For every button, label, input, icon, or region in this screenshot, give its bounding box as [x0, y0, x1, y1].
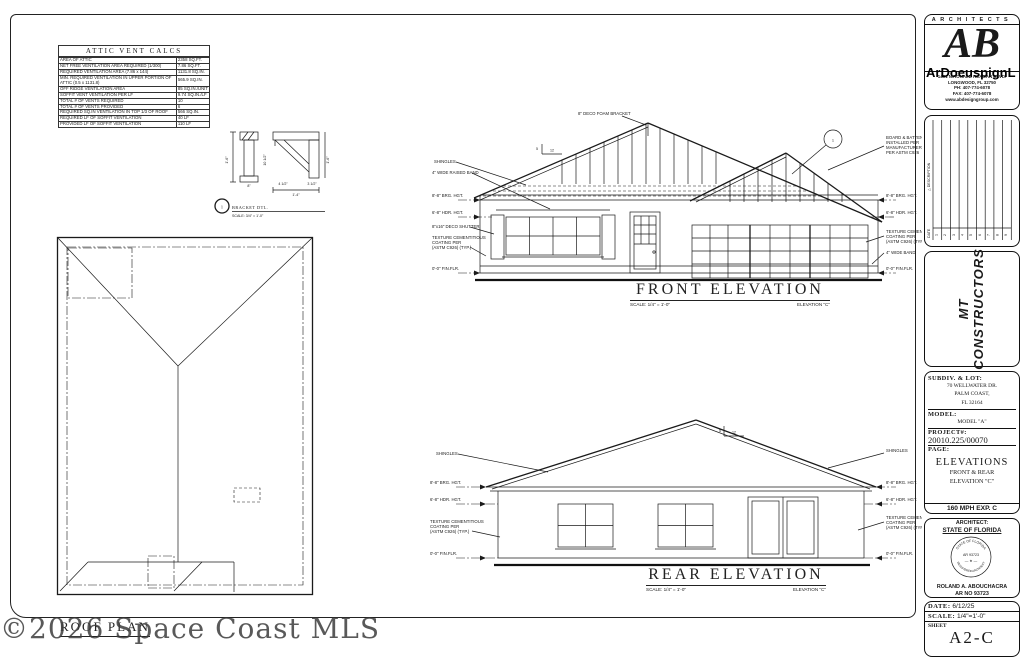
dim-label: 1'-6"	[225, 156, 229, 164]
svg-text:8'-8" BRG. HGT.: 8'-8" BRG. HGT.	[886, 480, 917, 485]
svg-text:7: 7	[987, 234, 991, 236]
model-section: MODEL: MODEL "A"	[928, 410, 1016, 429]
svg-text:0'-0" FIN.FLR.: 0'-0" FIN.FLR.	[432, 266, 459, 271]
detail-scale: SCALE: 3/4" = 1'-0"	[232, 214, 264, 218]
model-value: MODEL "A"	[928, 418, 1016, 426]
detail-number: 1	[221, 205, 223, 210]
svg-text:5: 5	[536, 147, 538, 151]
rear-elevation-scale: SCALE: 1/4" = 1'-0"	[646, 587, 686, 592]
logo-overlay-text: ArDoeuspignL	[926, 65, 1016, 80]
svg-text:2: 2	[943, 234, 947, 236]
page-title: ELEVATIONS	[928, 457, 1016, 468]
svg-text:0'-0" FIN.FLR.: 0'-0" FIN.FLR.	[886, 551, 913, 556]
svg-text:9: 9	[1004, 234, 1008, 236]
front-elevation-title: FRONT ELEVATION SCALE: 1/4" = 1'-0" ELEV…	[630, 281, 830, 307]
front-elevation-tag: ELEVATION "C"	[797, 302, 830, 307]
dim-label: 1'-4"	[292, 193, 300, 197]
roof-plan-drawing	[56, 236, 314, 596]
dim-label: 4 1/2"	[278, 182, 288, 186]
svg-text:0'-0" FIN.FLR.: 0'-0" FIN.FLR.	[886, 266, 913, 271]
front-entry-door	[630, 212, 660, 273]
project-number-value: 20010.225/00070	[928, 435, 1016, 446]
front-garage-door	[692, 225, 868, 278]
svg-text:1: 1	[934, 234, 938, 236]
rear-window-a	[555, 504, 616, 549]
svg-text:SHINGLES: SHINGLES	[436, 451, 458, 456]
svg-text:1: 1	[832, 138, 834, 143]
front-elevation-scale: SCALE: 1/4" = 1'-0"	[630, 302, 670, 307]
svg-text:6: 6	[978, 234, 982, 236]
architect-seal-panel: ARCHITECT: STATE OF FLORIDA STATE OF FLO…	[924, 518, 1020, 598]
revision-date-label: DATE	[927, 228, 931, 238]
architect-logo-panel: ARCHITECTS AB ArDoeuspignL 1461 N.RONALD…	[924, 14, 1020, 110]
issue-panel: DATE: 6/12/25 SCALE: 1/4"=1'-0" SHEET A2…	[924, 601, 1020, 657]
company-panel: MT CONSTRUCTORS	[924, 251, 1020, 367]
dim-label: 3 1/2"	[307, 182, 317, 186]
scale-value: 1/4"=1'-0"	[957, 613, 986, 620]
roof-plan-dormer-outline	[68, 248, 132, 298]
dim-label: 8"	[247, 184, 251, 188]
date-label: DATE:	[928, 603, 951, 610]
front-window	[491, 210, 615, 259]
roof-plan-entry-outline	[148, 556, 174, 588]
front-roof	[474, 116, 882, 222]
svg-text:6'-8" HDR. HGT.: 6'-8" HDR. HGT.	[432, 210, 463, 215]
project-number-section: PROJECT#: 20010.225/00070	[928, 429, 1016, 446]
seal-number: AR 93723	[963, 553, 979, 557]
rear-roof	[486, 420, 876, 491]
rear-pitch-marker: 12 5	[719, 426, 744, 436]
svg-text:0'-0" FIN.FLR.: 0'-0" FIN.FLR.	[430, 551, 457, 556]
svg-text:PER ASTM C926: PER ASTM C926	[886, 150, 920, 155]
rear-elevation-drawing: 12 5	[428, 392, 922, 570]
revision-table-panel: △ DESCRIPTION DATE 1 2 3 4 5 6 7 8 9	[924, 115, 1020, 247]
date-value: 6/12/25	[952, 603, 974, 610]
svg-text:5: 5	[719, 429, 721, 433]
svg-text:12: 12	[550, 149, 554, 153]
svg-text:SHINGLES: SHINGLES	[886, 448, 908, 453]
svg-text:(ASTM C926) (TYP.): (ASTM C926) (TYP.)	[430, 529, 470, 534]
seal-header: ARCHITECT: STATE OF FLORIDA	[925, 519, 1019, 535]
table-row: PROVIDED LF OF SOFFIT VENTILATION110 LF	[59, 122, 210, 128]
architect-name: ROLAND A. ABOUCHACRA AR NO 93723	[925, 584, 1019, 598]
front-walls	[480, 195, 878, 273]
svg-text:6'-8" HDR. HGT.: 6'-8" HDR. HGT.	[886, 210, 917, 215]
rear-sliding-door	[748, 497, 818, 558]
company-name: MT CONSTRUCTORS	[957, 248, 987, 370]
page-section: PAGE: ELEVATIONS FRONT & REAR ELEVATION …	[928, 446, 1016, 487]
svg-text:6'-8" HDR. HGT.: 6'-8" HDR. HGT.	[430, 497, 461, 502]
board-batten-main-gable	[478, 116, 882, 196]
shutter-right	[602, 215, 615, 259]
detail-title: BRACKET DTL.	[232, 205, 268, 210]
bracket-front-view	[230, 132, 258, 182]
table-row: MIN. REQUIRED VENTILATION IN UPPER PORTI…	[59, 75, 210, 86]
scale-label: SCALE:	[928, 613, 955, 620]
svg-text:12: 12	[732, 431, 736, 435]
page-label: PAGE:	[928, 446, 1016, 453]
subdiv-section: SUBDIV. & LOT: 70 WELLWATER DR. PALM COA…	[928, 374, 1016, 410]
dim-label: 1'-6"	[326, 156, 330, 164]
project-info-panel: SUBDIV. & LOT: 70 WELLWATER DR. PALM COA…	[924, 371, 1020, 514]
architect-seal: STATE OF FLORIDA REGISTERED ARCHITECT AR…	[925, 535, 1017, 579]
front-labels-right: BOARD & BATTEN SIDING INSTALLED PER MANU…	[828, 135, 922, 271]
seal-stars: — ★ —	[965, 559, 978, 563]
svg-text:6'-8" HDR. HGT.: 6'-8" HDR. HGT.	[886, 497, 917, 502]
revision-grid: △ DESCRIPTION DATE 1 2 3 4 5 6 7 8 9	[925, 116, 1017, 244]
svg-text:(ASTM C926) (TYP.): (ASTM C926) (TYP.)	[432, 245, 472, 250]
svg-text:3: 3	[952, 234, 956, 236]
roof-plan-vent-outline	[234, 488, 260, 502]
bracket-detail-drawing: 1'-6" 8" 10 1/2" 4 1/2" 3 1/2" 1'-4" 1'-…	[213, 120, 331, 220]
model-label: MODEL:	[928, 411, 1016, 418]
svg-text:(ASTM C926) (TYP.): (ASTM C926) (TYP.)	[886, 525, 922, 530]
rear-elevation-title: REAR ELEVATION SCALE: 1/4" = 1'-0" ELEVA…	[646, 566, 826, 592]
subdiv-label: SUBDIV. & LOT:	[928, 375, 1016, 382]
rear-labels-left: SHINGLES 8'-8" BRG. HGT. 6'-8" HDR. HGT.…	[430, 451, 548, 556]
front-elevation-drawing: 12 5 1 8" DECO FOAM BRACKET SHINGLES 4" …	[430, 106, 922, 284]
rear-elevation-tag: ELEVATION "C"	[793, 587, 826, 592]
issue-date-row: DATE: 6/12/25	[925, 602, 1019, 612]
svg-text:8'-8" BRG. HGT.: 8'-8" BRG. HGT.	[430, 480, 461, 485]
svg-text:8'-8" BRG. HGT.: 8'-8" BRG. HGT.	[886, 193, 917, 198]
roof-plan-lines	[58, 238, 313, 595]
attic-table-title: ATTIC VENT CALCS	[58, 45, 210, 57]
issue-scale-row: SCALE: 1/4"=1'-0"	[925, 612, 1019, 622]
svg-text:4" WIDE BAND: 4" WIDE BAND	[886, 250, 915, 255]
wind-rating: 160 MPH EXP. C	[925, 503, 1019, 512]
svg-text:4: 4	[961, 234, 965, 236]
sheet-number: A2-C	[925, 629, 1019, 646]
rear-window-b	[655, 504, 716, 549]
svg-text:5: 5	[969, 234, 973, 236]
rear-labels-right: SHINGLES 8'-8" BRG. HGT. 6'-8" HDR. HGT.…	[828, 448, 922, 556]
front-pitch-marker: 12 5	[536, 144, 562, 154]
mls-watermark: ©2026 Space Coast MLS	[0, 612, 380, 645]
attic-vent-calcs-table: ATTIC VENT CALCS AREA OF ATTIC2358 SQ.FT…	[58, 45, 210, 128]
plan-sheet: ATTIC VENT CALCS AREA OF ATTIC2358 SQ.FT…	[0, 0, 1024, 663]
dim-label: 10 1/2"	[263, 154, 267, 166]
revision-description-label: △ DESCRIPTION	[927, 162, 931, 191]
svg-text:8"x16" DECO SHUTTER: 8"x16" DECO SHUTTER	[432, 224, 479, 229]
svg-text:(ASTM C926) (TYP.): (ASTM C926) (TYP.)	[886, 239, 922, 244]
svg-text:8: 8	[995, 234, 999, 236]
svg-text:4" WIDE RAISED BAND: 4" WIDE RAISED BAND	[432, 170, 479, 175]
svg-text:8" DECO FOAM BRACKET: 8" DECO FOAM BRACKET	[578, 111, 631, 116]
svg-text:8'-8" BRG. HGT.: 8'-8" BRG. HGT.	[432, 193, 463, 198]
shutter-left	[491, 215, 504, 259]
svg-text:SHINGLES: SHINGLES	[434, 159, 456, 164]
rear-datum-lines	[456, 485, 896, 566]
